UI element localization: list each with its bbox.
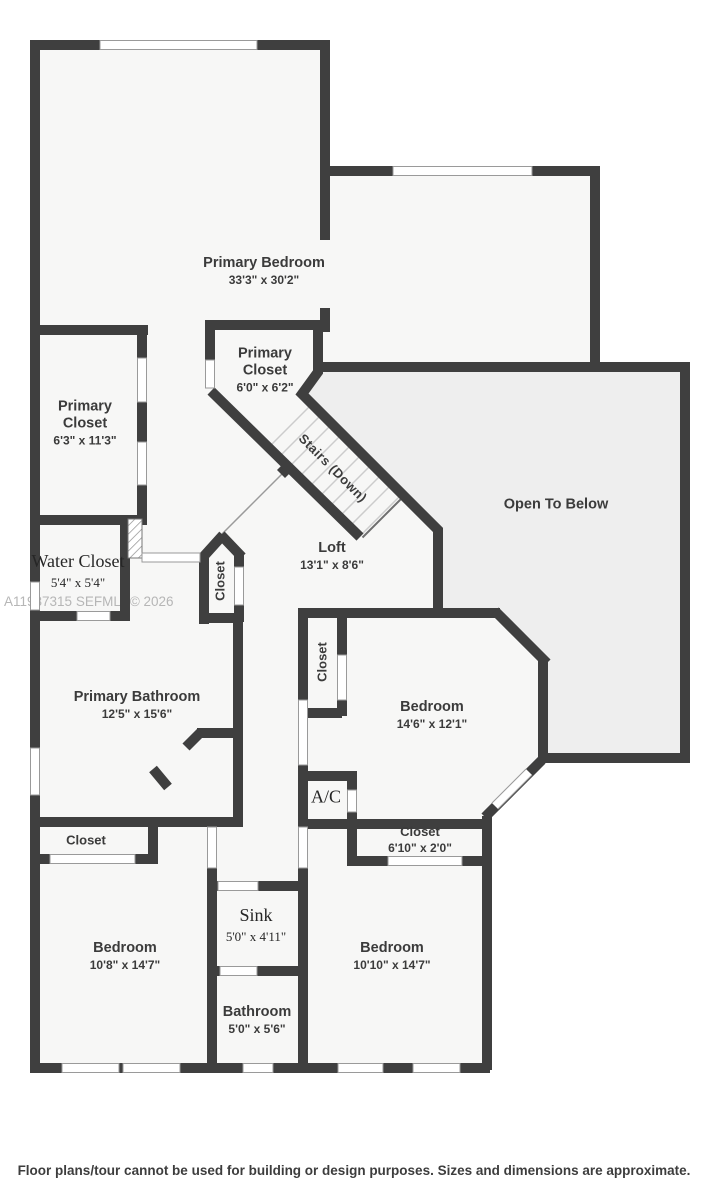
room-label-bedroom-mid-closet: Closet: [314, 642, 331, 682]
room-name: Primary Bathroom: [74, 689, 201, 706]
room-dims: 12'5" x 15'6": [74, 706, 201, 723]
room-name: Closet: [66, 832, 106, 849]
room-label-water-closet: Water Closet 5'4" x 5'4": [31, 553, 124, 591]
room-label-loft: Loft 13'1" x 8'6": [300, 540, 364, 574]
room-name: Bedroom: [90, 940, 160, 957]
room-label-hall-closet: Closet: [212, 561, 229, 601]
room-dims: 33'3" x 30'2": [203, 272, 325, 289]
room-name: Bedroom: [353, 940, 430, 957]
room-label-primary-bedroom: Primary Bedroom 33'3" x 30'2": [203, 255, 325, 289]
room-name: Open To Below: [504, 497, 608, 514]
room-label-bedroom-mid: Bedroom 14'6" x 12'1": [397, 699, 467, 733]
room-name: Closet: [314, 642, 331, 682]
room-dims: 14'6" x 12'1": [397, 716, 467, 733]
open-to-below-label: Open To Below: [504, 497, 608, 514]
room-dims: 10'8" x 14'7": [90, 957, 160, 974]
room-label-primary-bathroom: Primary Bathroom 12'5" x 15'6": [74, 689, 201, 723]
room-dims: 6'10" x 2'0": [388, 840, 452, 857]
room-label-closet-strip: Closet: [66, 832, 106, 849]
room-name: Primary Closet: [39, 399, 131, 433]
room-name: A/C: [311, 789, 341, 806]
room-label-primary-closet-left: Primary Closet 6'3" x 11'3": [39, 399, 131, 450]
room-label-primary-closet-small: Primary Closet 6'0" x 6'2": [219, 346, 311, 397]
room-dims: 5'4" x 5'4": [31, 574, 124, 591]
room-name: Primary Bedroom: [203, 255, 325, 272]
room-dims: 6'0" x 6'2": [219, 380, 311, 397]
hatched-wall-segment: [128, 519, 142, 558]
room-label-sink: Sink 5'0" x 4'11": [226, 907, 286, 945]
room-name: Loft: [300, 540, 364, 557]
room-label-closet-long: Closet 6'10" x 2'0": [388, 823, 452, 857]
disclaimer-text: Floor plans/tour cannot be used for buil…: [0, 1163, 708, 1178]
floor-plan-canvas: A11987315 SEFMLS© 2026: [0, 0, 708, 1200]
room-name: Closet: [388, 823, 452, 840]
room-dims: 13'1" x 8'6": [300, 557, 364, 574]
room-label-bathroom: Bathroom 5'0" x 5'6": [223, 1004, 291, 1038]
room-name: Water Closet: [31, 553, 124, 570]
mls-watermark: A11987315 SEFMLS© 2026: [4, 594, 174, 609]
room-name: Bathroom: [223, 1004, 291, 1021]
room-dims: 10'10" x 14'7": [353, 957, 430, 974]
room-label-ac: A/C: [311, 789, 341, 806]
room-name: Sink: [226, 907, 286, 924]
room-name: Bedroom: [397, 699, 467, 716]
room-label-bedroom-bottom-left: Bedroom 10'8" x 14'7": [90, 940, 160, 974]
room-dims: 6'3" x 11'3": [39, 433, 131, 450]
room-name: Primary Closet: [219, 346, 311, 380]
room-dims: 5'0" x 5'6": [223, 1021, 291, 1038]
room-name: Closet: [212, 561, 229, 601]
room-label-bedroom-bottom-right: Bedroom 10'10" x 14'7": [353, 940, 430, 974]
floor-plan-page: A11987315 SEFMLS© 2026: [0, 0, 708, 1200]
room-dims: 5'0" x 4'11": [226, 928, 286, 945]
